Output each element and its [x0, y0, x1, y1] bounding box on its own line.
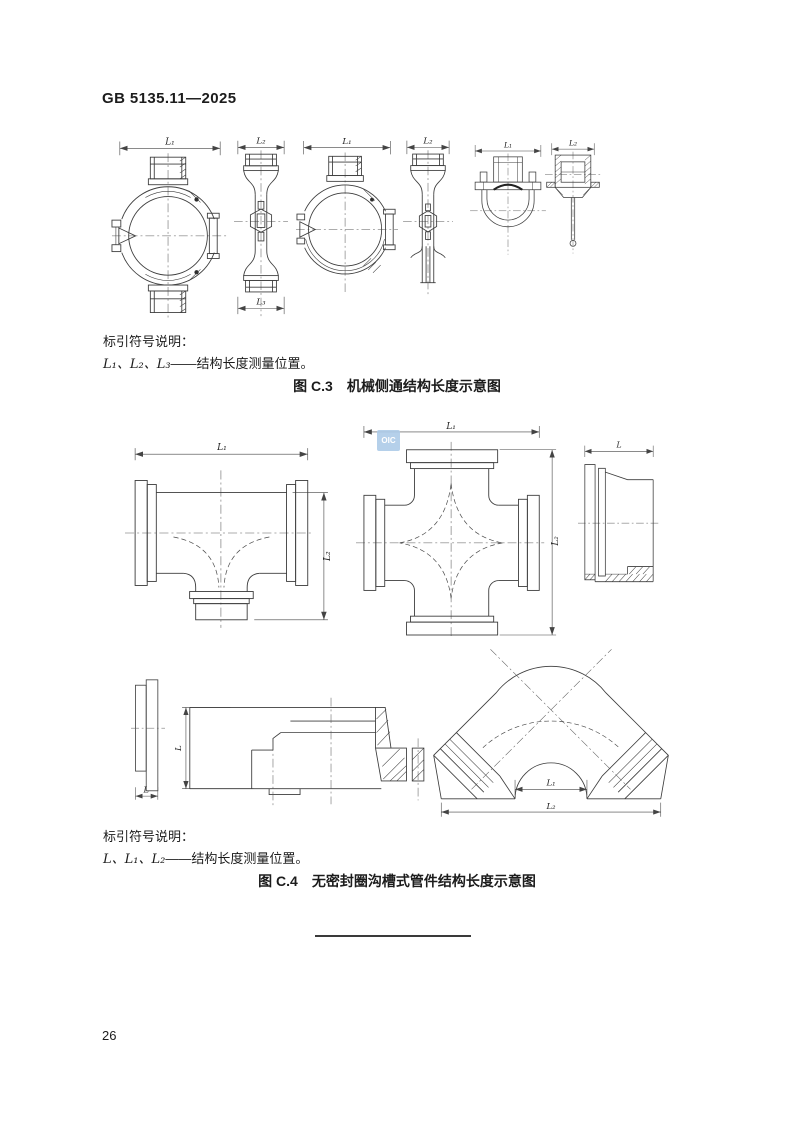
dim-label: L₂ — [422, 137, 433, 147]
dim-label: L₁ — [341, 137, 351, 147]
page-number: 26 — [102, 1028, 116, 1043]
dim-label: L₂ — [568, 139, 577, 148]
drawing-flange-plate-side-view: L — [131, 670, 165, 806]
dim-label: L — [616, 439, 622, 449]
drawing-grooved-end-section: L — [578, 440, 660, 610]
drawing-mech-saddle-front-view: L₁ — [296, 133, 398, 299]
dim-label: L₁ — [216, 443, 227, 453]
document-page: GB 5135.11—2025 L₁ L₂ L₃ — [0, 0, 794, 1123]
viewer-watermark: OIC — [377, 430, 400, 451]
figure-c4-legend-dash: —— — [165, 851, 191, 866]
dim-label: L₁ — [164, 137, 174, 147]
drawing-ubolt-clamp-front-view: L₁ — [470, 140, 546, 258]
drawing-mech-saddle-side-view: L₂ — [403, 133, 453, 298]
dim-label: L₁ — [545, 779, 555, 789]
drawing-mech-outlet-front-view: L₁ — [110, 133, 230, 323]
drawing-mech-outlet-side-view: L₂ L₃ — [234, 133, 288, 318]
figure-c3-legend-line: L₁、L₂、L₃——结构长度测量位置。 — [103, 353, 314, 372]
standard-number-header: GB 5135.11—2025 — [102, 90, 236, 107]
figure-c4-legend-symbols: L、L₁、L₂ — [103, 852, 165, 867]
dim-label: L — [143, 786, 149, 795]
dim-label: L₂ — [551, 536, 561, 547]
figure-c3-legend-desc: 结构长度测量位置。 — [197, 356, 314, 371]
drawing-grooved-tee: L₁ L₂ — [123, 440, 335, 632]
figure-c3-legend-title: 标引符号说明： — [103, 331, 194, 350]
figure-c4-caption: 图 C.4无密封圈沟槽式管件结构长度示意图 — [0, 871, 794, 891]
drawing-flange-adapter-section: L — [176, 692, 428, 810]
dim-label: L₂ — [545, 802, 556, 812]
figure-c4-legend-desc: 结构长度测量位置。 — [191, 851, 308, 866]
figure-c3-legend-dash: —— — [171, 356, 197, 371]
figure-c3-caption: 图 C.3机械侧通结构长度示意图 — [0, 376, 794, 396]
figure-c4-legend-title: 标引符号说明： — [103, 826, 194, 845]
dim-label: L₂ — [323, 551, 333, 562]
dim-label: L₁ — [503, 141, 512, 150]
figure-c3-caption-title: 机械侧通结构长度示意图 — [347, 378, 501, 394]
figure-c3-legend-symbols: L₁、L₂、L₃ — [103, 357, 171, 372]
figure-c3-caption-number: 图 C.3 — [293, 378, 333, 394]
dim-label: L₁ — [445, 422, 456, 432]
dim-label: L₂ — [255, 137, 266, 147]
figure-c4-legend-line: L、L₁、L₂——结构长度测量位置。 — [103, 848, 308, 867]
drawing-outlet-socket-section: L₂ — [545, 138, 601, 257]
end-of-section-divider — [315, 935, 471, 937]
dim-label: L — [174, 745, 184, 752]
figure-c4-caption-title: 无密封圈沟槽式管件结构长度示意图 — [312, 873, 536, 889]
drawing-grooved-cross: L₁ L₂ — [356, 422, 566, 638]
drawing-grooved-elbow: L₁ L₂ — [428, 630, 674, 820]
figure-c4-caption-number: 图 C.4 — [258, 873, 298, 889]
